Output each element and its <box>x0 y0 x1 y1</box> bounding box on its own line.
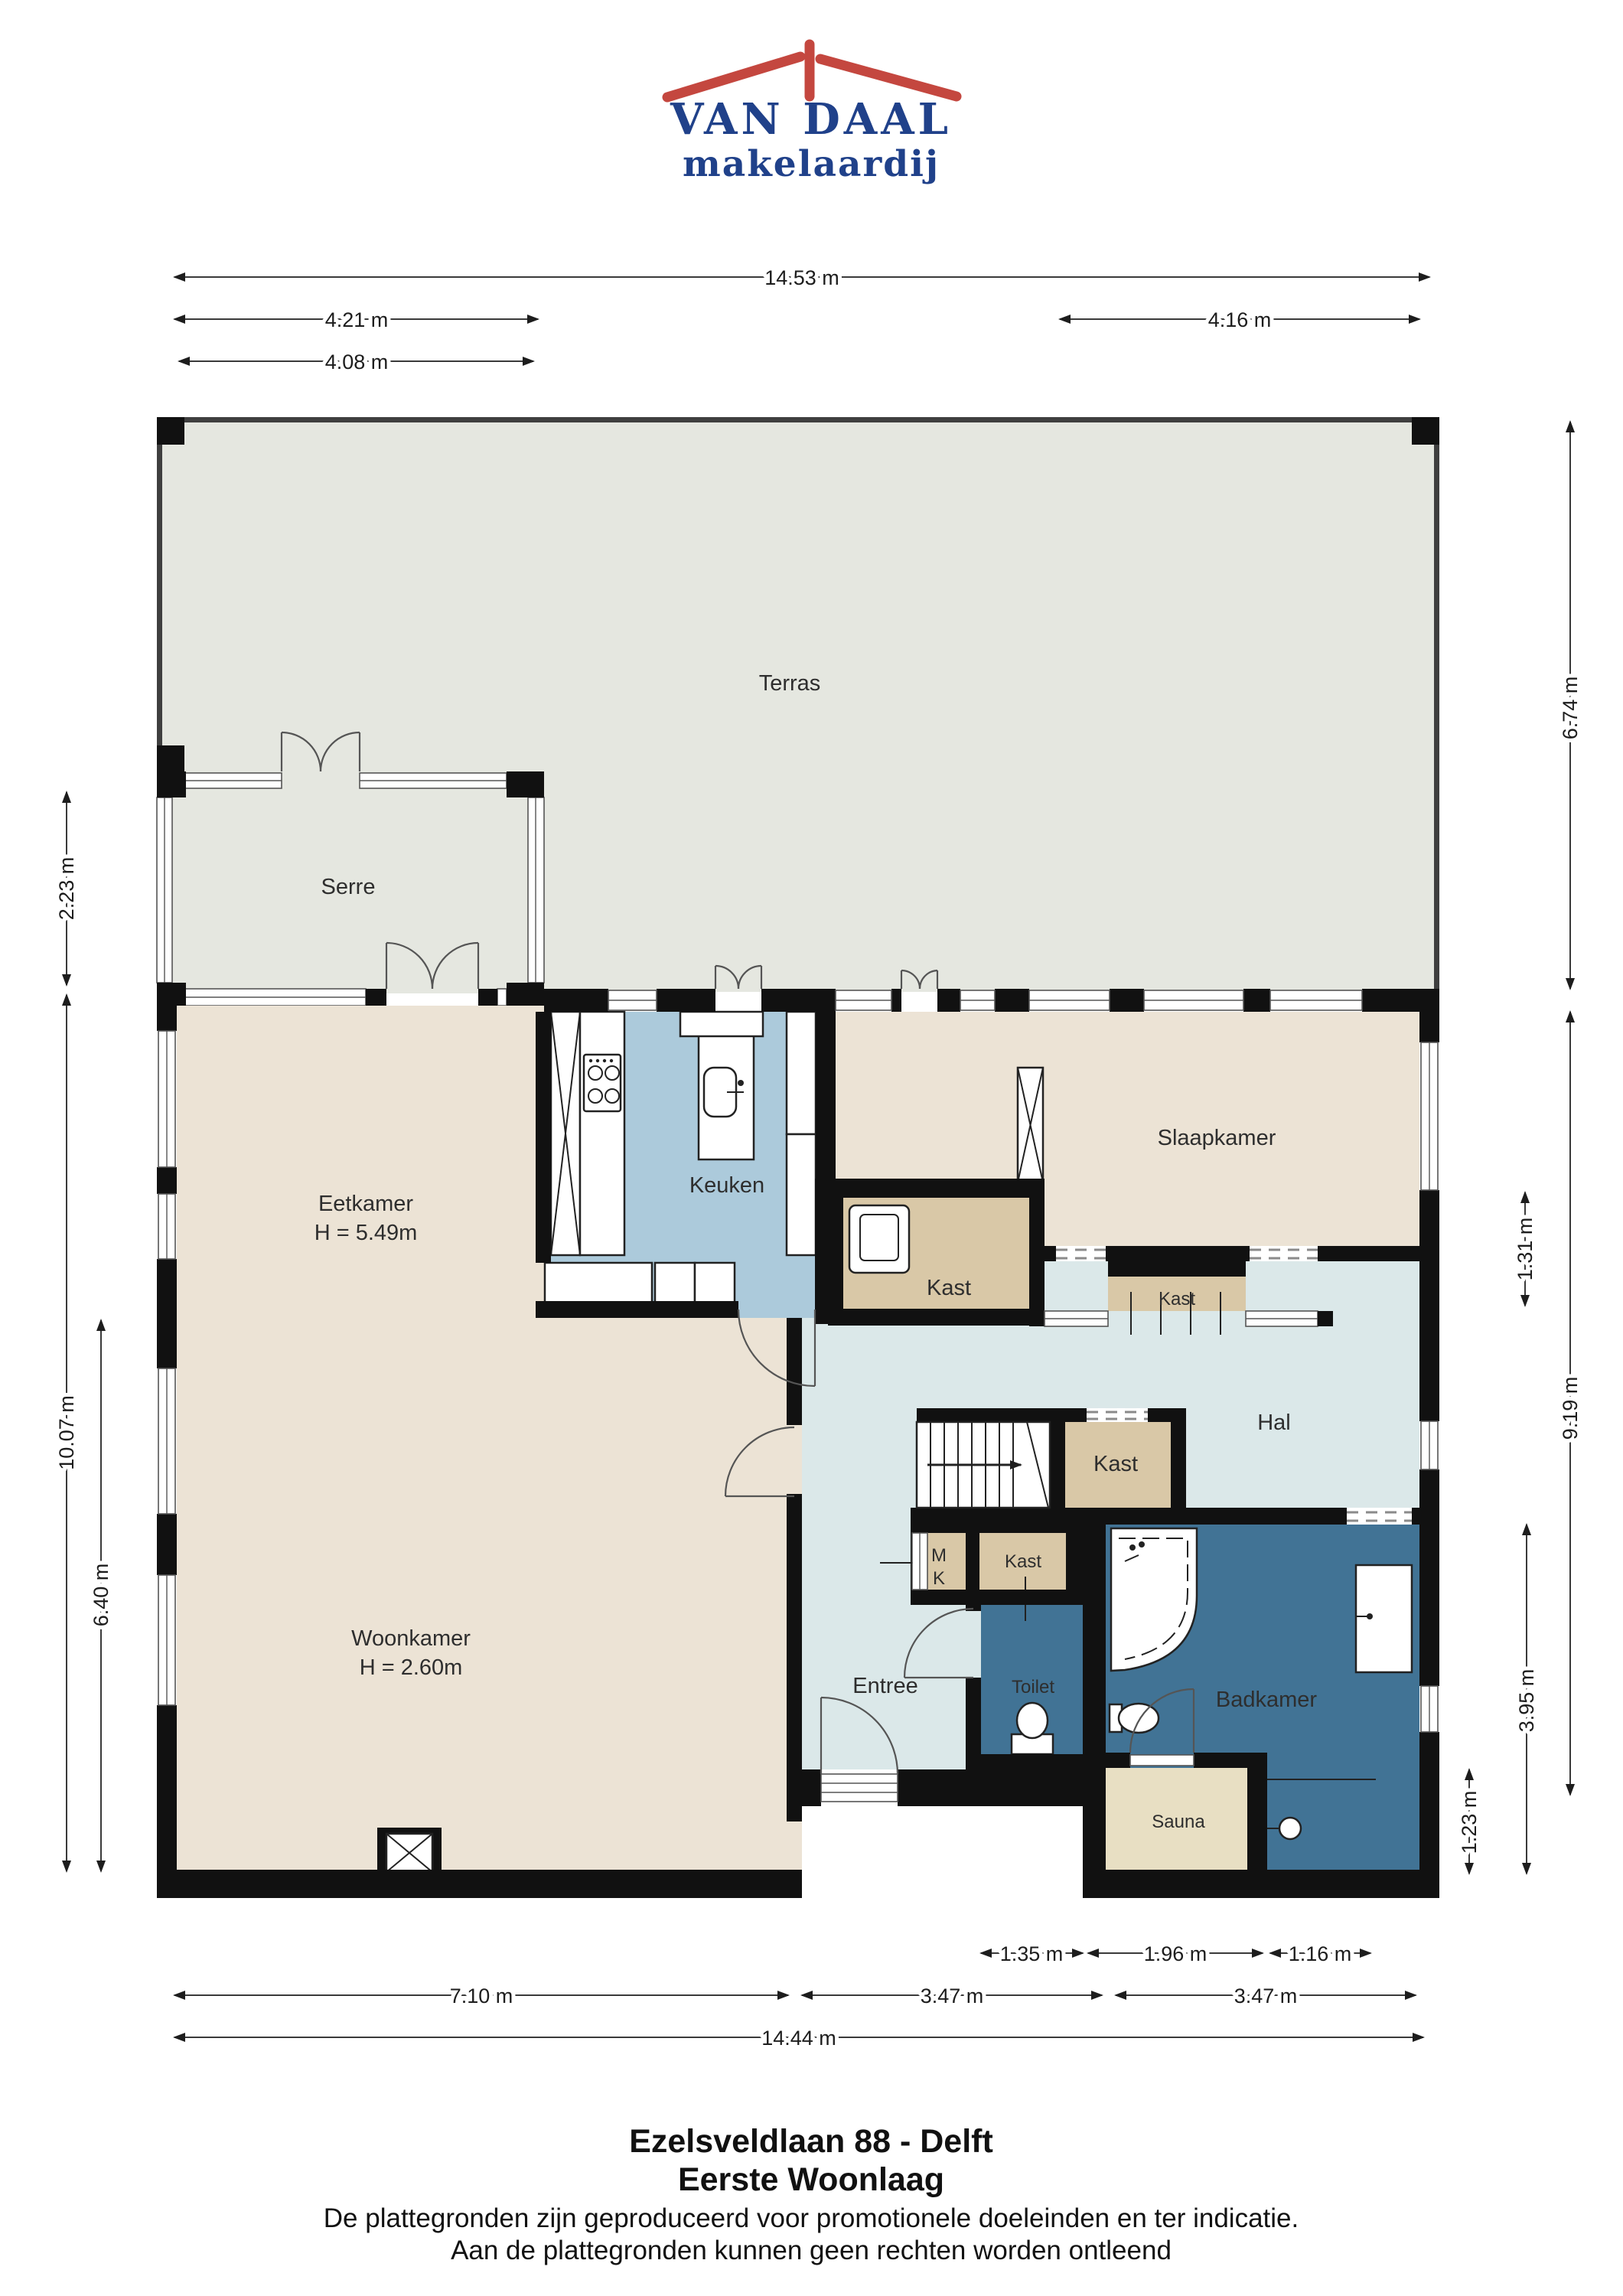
woonkamer-height-label: H = 2.60m <box>360 1655 463 1680</box>
dim-serre-width: 4.21 m <box>325 308 389 331</box>
terras-label: Terras <box>759 671 821 696</box>
shower-head-icon <box>1279 1818 1301 1839</box>
dim-terras-height: 6.74 m <box>1559 677 1582 740</box>
serre-post <box>507 771 544 797</box>
logo: VAN DAAL makelaardij <box>667 44 957 185</box>
dim-slaapkamer-width: 4.16 m <box>1208 308 1272 331</box>
floorplan-page: VAN DAAL makelaardij <box>0 0 1623 2296</box>
terras-post <box>157 417 184 445</box>
kitchen-cabinet <box>787 1134 816 1255</box>
terras-wall-left <box>157 417 162 773</box>
toilet-bowl-icon <box>1017 1703 1048 1738</box>
dim-left-total: 10.07 m <box>55 1395 78 1470</box>
kast-entree-label: Kast <box>1005 1551 1041 1572</box>
terras-post <box>1412 417 1439 445</box>
serre-post <box>478 989 497 1006</box>
dim-badkamer-height: 3.95 m <box>1515 1669 1538 1733</box>
stairs <box>917 1422 1050 1508</box>
logo-roof-left-icon <box>667 57 800 97</box>
kitchen-counter <box>580 1012 624 1255</box>
washbasin-unit <box>1356 1565 1412 1672</box>
kast-hal-label: Kast <box>1093 1452 1138 1476</box>
logo-tagline: makelaardij <box>683 143 940 185</box>
toilet-label: Toilet <box>1012 1677 1054 1698</box>
kitchen-counter <box>655 1263 695 1303</box>
dim-bottom-total: 14.44 m <box>761 2027 836 2050</box>
dim-sauna-width: 1.96 m <box>1144 1942 1207 1965</box>
serre-glass-bottom <box>497 989 507 1006</box>
serre-post <box>366 989 386 1006</box>
dim-top-total: 14.53 m <box>764 266 839 289</box>
woonkamer-floor <box>551 1318 802 1870</box>
dim-toilet-width: 1.35 m <box>1000 1942 1064 1965</box>
kitchen-counter <box>695 1263 735 1303</box>
kitchen-cabinet <box>787 1012 816 1134</box>
footer-disclaimer-2: Aan de plattegronden kunnen geen rechten… <box>451 2236 1172 2265</box>
entree-label: Entree <box>852 1674 917 1698</box>
eetkamer-label: Eetkamer <box>318 1192 413 1216</box>
dim-right-interior: 9.19 m <box>1559 1377 1582 1440</box>
terras-post <box>157 745 184 773</box>
footer: Ezelsveldlaan 88 - Delft Eerste Woonlaag… <box>324 2123 1299 2265</box>
logo-roof-right-icon <box>820 59 957 96</box>
sauna-label: Sauna <box>1152 1812 1205 1832</box>
dim-badkamer-width: 3.47 m <box>1234 1985 1298 2007</box>
kitchen-counter <box>680 1012 763 1036</box>
terras-wall-right <box>1434 417 1439 999</box>
footer-address: Ezelsveldlaan 88 - Delft <box>629 2123 993 2160</box>
dim-shower-width: 1.16 m <box>1289 1942 1352 1965</box>
eetkamer-woonkamer-floor <box>177 1006 551 1870</box>
floorplan-canvas: VAN DAAL makelaardij <box>0 0 1623 2296</box>
footer-floor: Eerste Woonlaag <box>678 2161 944 2198</box>
eetkamer-height-label: H = 5.49m <box>314 1221 418 1245</box>
dim-nook-height: 1.31 m <box>1514 1218 1537 1281</box>
dim-serre-inner-width: 4.08 m <box>325 351 389 373</box>
kitchen-counter <box>545 1263 652 1303</box>
serre-label: Serre <box>321 875 376 899</box>
meterkast-label-k: K <box>933 1568 945 1589</box>
dim-sauna-height: 1.23 m <box>1458 1791 1481 1854</box>
kast-slaapkamer-label: Kast <box>1159 1289 1195 1309</box>
dim-woonkamer-height: 6.40 m <box>90 1564 112 1627</box>
south-wall <box>157 1870 802 1898</box>
hal-label: Hal <box>1257 1411 1291 1435</box>
serre-post <box>507 983 544 1006</box>
slaapkamer-label: Slaapkamer <box>1158 1126 1276 1150</box>
kast-keuken-label: Kast <box>927 1276 971 1300</box>
badkamer-label: Badkamer <box>1216 1688 1318 1712</box>
dim-woonkamer-width: 7.10 m <box>450 1985 513 2007</box>
footer-disclaimer-1: De plattegronden zijn geproduceerd voor … <box>324 2203 1299 2233</box>
terras-wall-top <box>157 417 1439 422</box>
logo-name: VAN DAAL <box>670 94 952 145</box>
dim-entree-width: 3.47 m <box>921 1985 984 2007</box>
dim-serre-height: 2.23 m <box>55 857 78 921</box>
woonkamer-label: Woonkamer <box>351 1626 471 1651</box>
keuken-label: Keuken <box>689 1173 764 1198</box>
meterkast-label-m: M <box>931 1545 947 1566</box>
toilet-bowl-icon <box>1119 1704 1159 1733</box>
washer-icon <box>849 1205 909 1273</box>
serre-post <box>157 771 186 797</box>
